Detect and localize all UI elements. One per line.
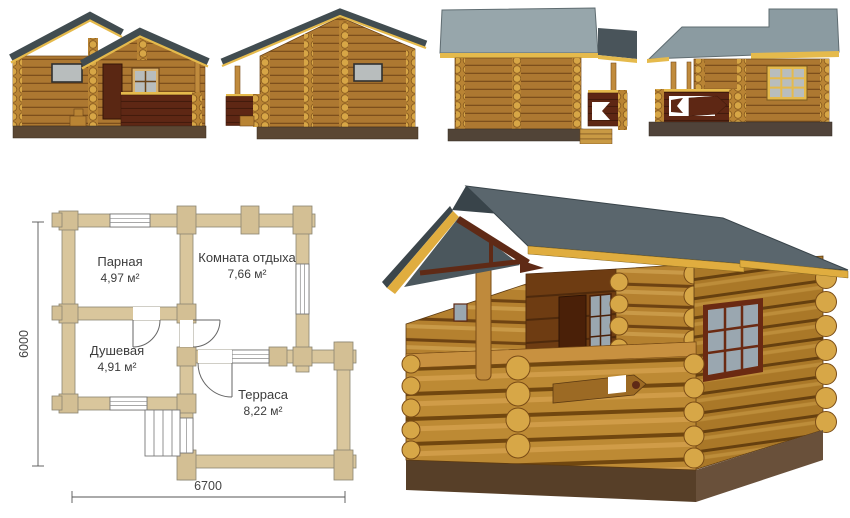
front-elevation-view <box>8 4 214 142</box>
entry-door <box>103 64 122 119</box>
porch-edge <box>226 66 262 127</box>
carved-log-notch <box>608 375 626 394</box>
room-label-parnaya: Парная <box>97 254 142 269</box>
small-side-window <box>454 304 467 321</box>
large-window <box>767 66 807 100</box>
steps <box>240 116 254 126</box>
room-area-parnaya: 4,97 м² <box>101 271 140 285</box>
terrace-post <box>687 62 691 92</box>
foundation <box>649 122 832 136</box>
plan-steps <box>145 410 180 456</box>
floor-plan: Парная 4,97 м² Комната отдыха 7,66 м² Ду… <box>10 192 396 510</box>
foundation <box>13 126 206 138</box>
rear-elevation-view <box>220 4 428 142</box>
room-area-terrasa: 8,22 м² <box>244 404 283 418</box>
room-label-dushevaya: Душевая <box>90 343 144 358</box>
terrace-left-log-ends <box>402 355 420 459</box>
roof <box>440 8 637 63</box>
perspective-view <box>378 172 850 518</box>
porch-window <box>132 68 159 95</box>
stepped-roof-plane <box>649 9 839 59</box>
right-side-elevation-view <box>643 2 849 144</box>
left-side-elevation-view <box>432 2 640 144</box>
porch-post <box>476 266 491 380</box>
porch-roof-plane <box>598 28 637 59</box>
room-area-komnata: 7,66 м² <box>228 267 267 281</box>
window <box>52 64 82 82</box>
terrace-post <box>671 62 676 92</box>
foundation <box>448 129 583 141</box>
room-label-terrasa: Терраса <box>238 387 289 402</box>
roof <box>647 9 839 63</box>
terrace-railing <box>402 342 704 470</box>
window <box>354 64 382 81</box>
foundation <box>257 127 418 139</box>
porch-post <box>235 66 240 96</box>
room-label-komnata: Комната отдыха <box>198 250 296 265</box>
porch <box>580 63 627 144</box>
dim-width-label: 6700 <box>194 479 222 493</box>
room-area-dushevaya: 4,91 м² <box>98 360 137 374</box>
porch-railing <box>121 95 200 126</box>
terrace-right-log-ends <box>684 354 704 468</box>
dim-height-label: 6000 <box>17 330 31 358</box>
eave-beam-end <box>520 260 544 273</box>
right-wall-window <box>703 298 763 382</box>
drawing-canvas: Парная 4,97 м² Комната отдыха 7,66 м² Ду… <box>0 0 850 518</box>
main-roof-plane <box>440 8 598 53</box>
steps <box>580 129 612 144</box>
